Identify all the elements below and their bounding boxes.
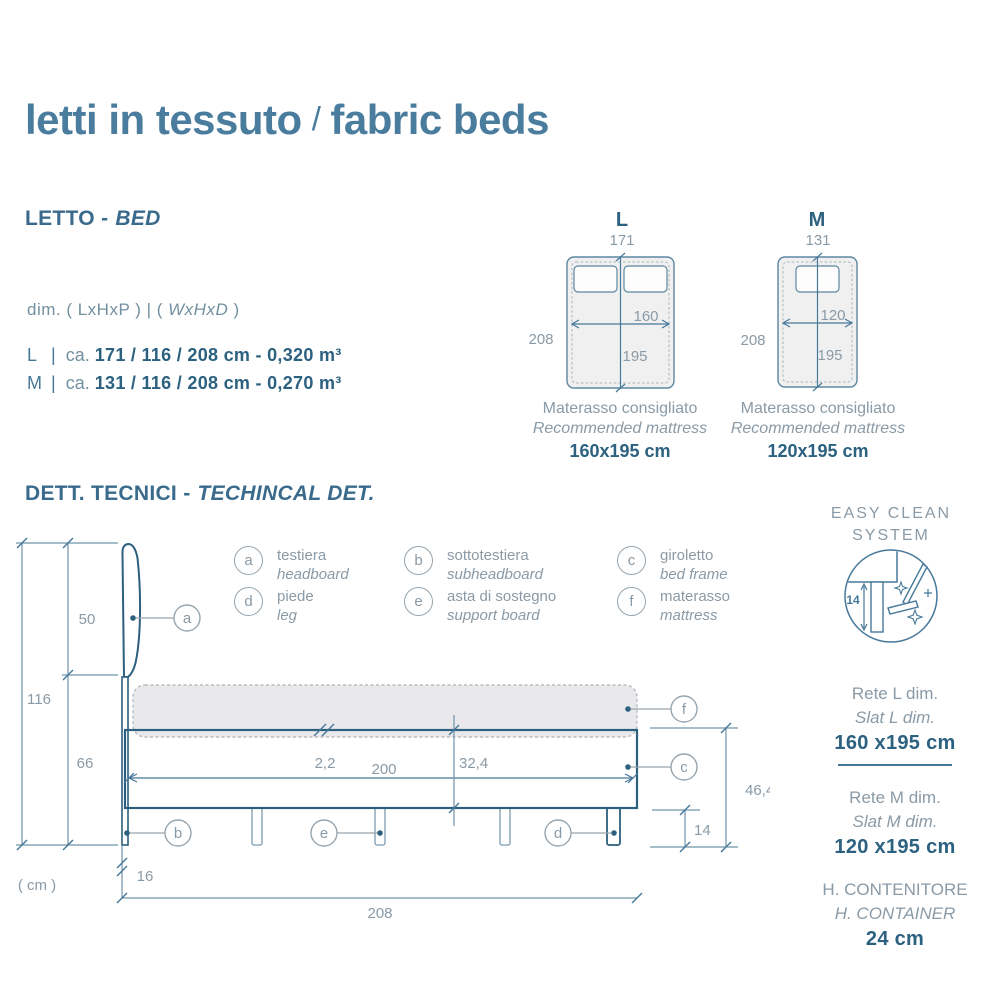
bed-m-mattress-width-dim: 120 xyxy=(820,307,845,324)
caption-italian: Materasso consigliato xyxy=(741,400,896,417)
size-divider: | xyxy=(51,345,66,365)
dim-prefix: dim. ( LxHxP ) | ( xyxy=(27,300,163,319)
dim-base-height: 66 xyxy=(77,755,94,772)
easy-clean-icon: 14 xyxy=(841,544,941,650)
size-divider: | xyxy=(51,373,66,393)
caption-mattress-size: 160x195 cm xyxy=(510,441,730,461)
container-en: H. CONTAINER xyxy=(800,902,990,926)
bottom-dimension-lines xyxy=(122,845,637,898)
dim-frame-height: 32,4 xyxy=(459,755,488,772)
easy-clean-height-dim xyxy=(861,584,867,630)
dim-frame-plus-leg-height: 46,4 xyxy=(745,782,770,799)
slat-m-en: Slat M dim. xyxy=(800,810,990,834)
dim-headboard-depth: 16 xyxy=(137,868,154,885)
bottom-dimension-ticks xyxy=(117,858,642,903)
mop-icon xyxy=(888,564,927,614)
caption-english: Recommended mattress xyxy=(510,419,730,439)
callout-letter: d xyxy=(554,825,562,842)
callout-letter: e xyxy=(320,825,328,842)
technical-drawing-side-view: 116 50 66 200 2,2 xyxy=(0,530,770,930)
panel-divider xyxy=(838,764,952,766)
callout-d-leg: d xyxy=(545,820,617,846)
callout-letter: a xyxy=(183,610,192,627)
size-approx: ca. xyxy=(66,345,90,365)
easy-clean-dim-label: 14 xyxy=(846,593,860,607)
pillow xyxy=(574,266,617,292)
section-heading-tecnici: DETT. TECNICI -TECHINCAL DET. xyxy=(25,482,375,506)
bed-m-size-label: M xyxy=(809,209,826,231)
bed-leg-foot xyxy=(607,808,620,845)
slat-m-value: 120 x195 cm xyxy=(800,835,990,859)
bed-leg xyxy=(252,808,262,845)
dim-headboard-height: 50 xyxy=(79,611,96,628)
container-height-block: H. CONTENITORE H. CONTAINER 24 cm xyxy=(800,878,990,951)
bed-leg xyxy=(500,808,510,845)
pillow xyxy=(624,266,667,292)
title-english: fabric beds xyxy=(330,96,549,143)
title-italian: letti in tessuto xyxy=(25,96,302,143)
slat-l-en: Slat L dim. xyxy=(800,706,990,730)
section-heading-letto: LETTO -BED xyxy=(25,207,161,231)
bed-l-caption: Materasso consigliato Recommended mattre… xyxy=(510,399,730,461)
dim-inner-length: 200 xyxy=(371,761,396,778)
bed-m-depth-dim: 208 xyxy=(740,332,765,349)
bed-l-mattress-width-dim: 160 xyxy=(633,308,658,325)
size-row-m: M|ca.131 / 116 / 208 cm - 0,270 m³ xyxy=(27,373,342,394)
bed-l-mattress-length-dim: 195 xyxy=(622,348,647,365)
bed-l-width-dim: 171 xyxy=(609,232,634,249)
unit-label: ( cm ) xyxy=(18,877,56,894)
bed-l-size-label: L xyxy=(616,209,628,231)
size-value-l: 171 / 116 / 208 cm - 0,320 m³ xyxy=(95,345,342,365)
bed-leg xyxy=(375,808,385,845)
slat-l-block: Rete L dim. Slat L dim. 160 x195 cm xyxy=(800,682,990,755)
dim-frame-lip: 2,2 xyxy=(315,755,336,772)
easy-clean-line1: EASY CLEAN xyxy=(831,505,951,522)
tecnici-heading-it: DETT. TECNICI - xyxy=(25,482,191,505)
slat-l-value: 160 x195 cm xyxy=(800,731,990,755)
bed-l-depth-dim: 208 xyxy=(528,331,553,348)
bed-m-width-dim: 131 xyxy=(805,232,830,249)
caption-italian: Materasso consigliato xyxy=(543,400,698,417)
dim-total-length: 208 xyxy=(367,905,392,922)
letto-heading-it: LETTO - xyxy=(25,207,108,230)
size-code-l: L xyxy=(27,345,51,366)
dim-total-height: 116 xyxy=(27,691,51,708)
tecnici-heading-en: TECHINCAL DET. xyxy=(198,482,375,505)
bed-m-mattress-length-dim: 195 xyxy=(817,347,842,364)
headboard-profile xyxy=(122,544,140,677)
callout-letter: c xyxy=(680,759,688,776)
size-row-l: L|ca.171 / 116 / 208 cm - 0,320 m³ xyxy=(27,345,342,366)
caption-mattress-size: 120x195 cm xyxy=(708,441,928,461)
dimension-legend-line: dim. ( LxHxP ) | ( WxHxD ) xyxy=(27,300,240,320)
title-separator-icon: / xyxy=(302,100,331,137)
size-approx: ca. xyxy=(66,373,90,393)
easy-clean-title: EASY CLEAN SYSTEM xyxy=(811,503,971,547)
container-it: H. CONTENITORE xyxy=(822,880,967,899)
container-value: 24 cm xyxy=(800,927,990,951)
page-title: letti in tessuto/fabric beds xyxy=(25,96,549,144)
caption-english: Recommended mattress xyxy=(708,419,928,439)
callout-b-subheadboard: b xyxy=(124,820,191,846)
slat-l-it: Rete L dim. xyxy=(852,684,938,703)
callout-letter: b xyxy=(174,825,182,842)
bed-m-caption: Materasso consigliato Recommended mattre… xyxy=(708,399,928,461)
dim-suffix: ) xyxy=(233,300,239,319)
easy-clean-bed-corner xyxy=(841,544,897,632)
size-code-m: M xyxy=(27,373,51,394)
easy-clean-line2: SYSTEM xyxy=(852,527,930,544)
slat-m-it: Rete M dim. xyxy=(849,788,941,807)
callout-e-support-board: e xyxy=(311,820,383,846)
dim-italic: WxHxD xyxy=(168,300,228,319)
spec-sheet-page: letti in tessuto/fabric beds LETTO -BED … xyxy=(0,0,1000,1000)
dim-leg-height: 14 xyxy=(694,822,711,839)
easy-clean-leg xyxy=(871,582,883,632)
letto-heading-en: BED xyxy=(115,207,160,230)
size-value-m: 131 / 116 / 208 cm - 0,270 m³ xyxy=(95,373,342,393)
slat-m-block: Rete M dim. Slat M dim. 120 x195 cm xyxy=(800,786,990,859)
